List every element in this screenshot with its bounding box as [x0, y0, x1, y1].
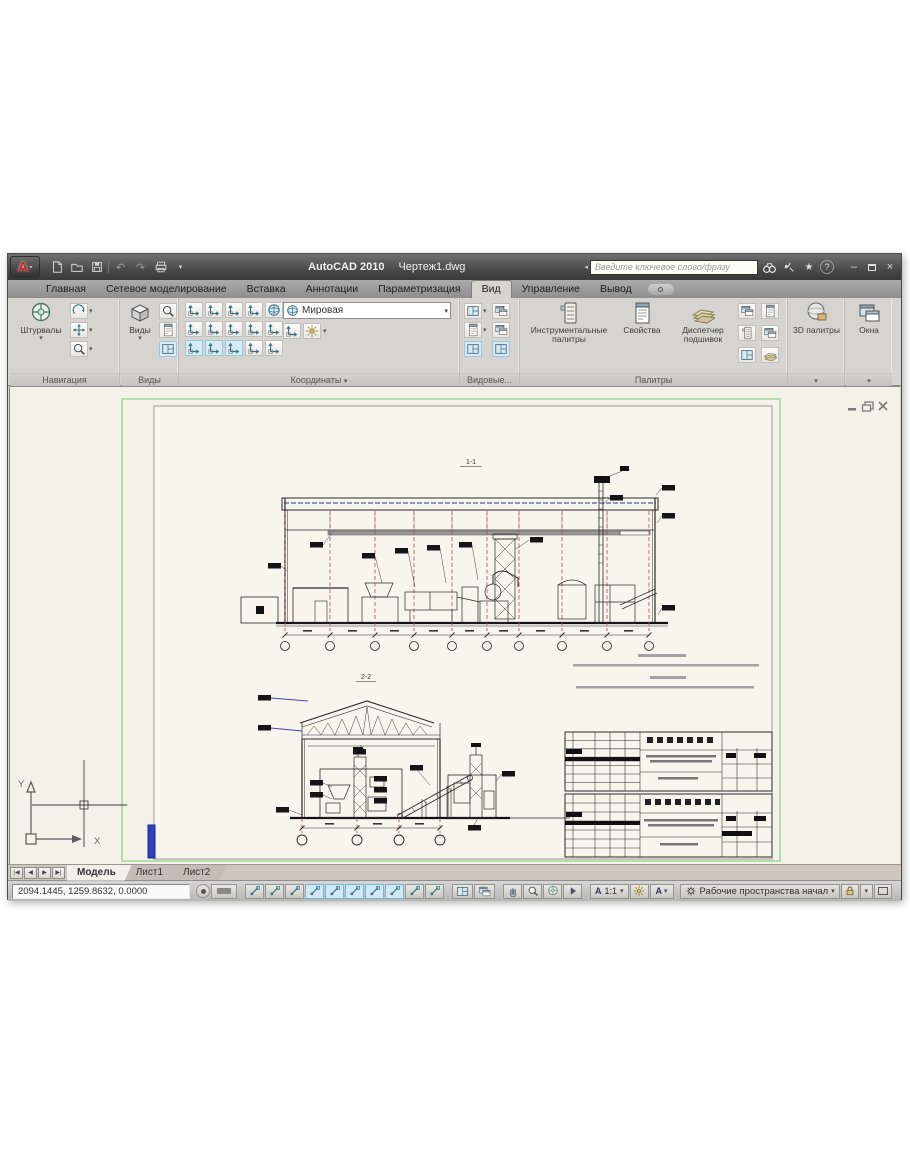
- ucs-tool-button[interactable]: [225, 321, 243, 337]
- minimize-button[interactable]: –: [846, 260, 862, 274]
- ucs-tool-button[interactable]: [185, 340, 203, 356]
- tool-palettes-button[interactable]: Инструментальные палитры: [526, 301, 612, 344]
- pan-icon: [72, 323, 86, 337]
- prev-layout-button[interactable]: ◀: [24, 867, 37, 879]
- sheet-set-icon: [691, 301, 715, 325]
- application-menu-button[interactable]: A▾: [10, 256, 40, 278]
- globe-icon: [286, 304, 299, 317]
- ucs-axes-icon: [267, 322, 281, 336]
- orbit-button[interactable]: [70, 303, 88, 319]
- model-paper-button[interactable]: [211, 884, 237, 899]
- steering-wheel-button[interactable]: [543, 884, 562, 899]
- ribbon-tab-view[interactable]: Вид: [471, 280, 512, 298]
- chevron-down-icon: ▾: [620, 887, 624, 895]
- panel-label-views[interactable]: Виды: [121, 373, 178, 386]
- ucs-tool-button[interactable]: [205, 321, 223, 337]
- magnifier-icon: [72, 342, 86, 356]
- window-title: AutoCAD 2010Чертеж1.dwg: [189, 261, 584, 273]
- annotation-visibility-button[interactable]: [630, 884, 649, 899]
- viewport-icon: [466, 342, 480, 356]
- grid-icon: [740, 348, 754, 362]
- named-viewport-button[interactable]: [464, 322, 482, 338]
- markup-button[interactable]: [761, 303, 779, 319]
- coordinates-readout: 2094.1445, 1259.8632, 0.0000: [12, 884, 190, 899]
- status-bar: 2094.1445, 1259.8632, 0.0000 А: [8, 880, 901, 901]
- redo-button[interactable]: ↷: [132, 259, 149, 275]
- ribbon: Штурвалы ▾ ▾ ▾ ▾ Навигация Виды ▾: [8, 298, 901, 386]
- communication-center-icon[interactable]: [780, 259, 798, 275]
- autocad-window: A▾ ↶ ↷ ▾ AutoCAD 2010Чертеж1.dwg ◂ ★: [7, 253, 902, 900]
- pan-button[interactable]: [503, 884, 522, 899]
- toolbar-lock-button[interactable]: [841, 884, 859, 899]
- restore-icon[interactable]: [863, 402, 874, 411]
- qat-customize-caret[interactable]: ▾: [172, 259, 189, 275]
- section-label: 2-2: [361, 674, 371, 681]
- first-layout-button[interactable]: |◀: [10, 867, 23, 879]
- toggle-ducs[interactable]: [365, 884, 384, 899]
- lights-button[interactable]: [761, 325, 779, 341]
- chevron-down-icon: ▾: [831, 887, 835, 895]
- drawing-canvas[interactable]: 1-1: [9, 386, 900, 864]
- maximize-icon: [868, 264, 876, 271]
- tab-layout2[interactable]: Лист2: [173, 865, 226, 881]
- save-button[interactable]: [88, 259, 105, 275]
- sheet-set-manager-button[interactable]: Диспетчер подшивок: [672, 301, 734, 344]
- ucs-combo-value: Мировая: [302, 305, 441, 316]
- chevron-down-icon: ▾: [89, 326, 93, 334]
- chevron-down-icon: ▾: [89, 307, 93, 315]
- panel-label-windows[interactable]: ▾: [846, 373, 892, 386]
- ucs-axes-icon: [267, 341, 281, 355]
- window-icon: [740, 304, 754, 318]
- ucs-axes-icon: [227, 341, 241, 355]
- steering-wheel-icon: [29, 301, 53, 325]
- ribbon-options-pill[interactable]: [648, 284, 674, 295]
- quickcalc-button[interactable]: [738, 325, 756, 341]
- sheet-icon: [161, 323, 175, 337]
- ucs-tool-button[interactable]: [185, 302, 203, 318]
- chevron-down-icon: ▾: [483, 307, 487, 315]
- steering-wheels-button[interactable]: Штурвалы ▾: [16, 301, 66, 341]
- bucket-icon: [763, 348, 777, 362]
- zoom-extents-button[interactable]: [159, 303, 177, 319]
- join-viewport-button[interactable]: [464, 341, 482, 357]
- ucs-tool-button[interactable]: [205, 340, 223, 356]
- zoom-button[interactable]: [523, 884, 542, 899]
- status-menu-caret[interactable]: ▾: [860, 884, 873, 899]
- chevron-down-icon: ▾: [138, 336, 142, 341]
- workspace-label: Рабочие пространства начал: [700, 886, 829, 897]
- chevron-down-icon: ▾: [323, 327, 327, 335]
- panel-expand-caret: ▾: [867, 378, 871, 385]
- panel-coordinates: Мировая ▾ ▾ Координаты ▾: [179, 298, 460, 386]
- maximize-button[interactable]: [864, 260, 880, 274]
- steering-wheels-label: Штурвалы: [21, 326, 62, 335]
- 3d-palettes-label: 3D палитры: [793, 326, 840, 335]
- annotation-a-icon: А: [656, 886, 663, 896]
- tab-model[interactable]: Модель: [67, 865, 132, 881]
- magnifier-icon: [527, 885, 539, 897]
- 3d-palettes-button[interactable]: 3D палитры: [792, 301, 841, 335]
- ucs-tool-button[interactable]: [225, 302, 243, 318]
- quick-access-toolbar: ↶ ↷ ▾: [48, 259, 189, 275]
- window-icon: [763, 326, 777, 340]
- pan-button[interactable]: [70, 322, 88, 338]
- screenshot-page: A▾ ↶ ↷ ▾ AutoCAD 2010Чертеж1.dwg ◂ ★: [0, 0, 910, 1155]
- viewport-config-button[interactable]: [492, 303, 510, 319]
- fullscreen-icon: [878, 887, 888, 895]
- ucs-axes-icon: [207, 341, 221, 355]
- close-icon[interactable]: [879, 402, 887, 410]
- new-document-button[interactable]: [48, 259, 65, 275]
- document-name: Чертеж1.dwg: [398, 261, 465, 273]
- viewport-clip-button[interactable]: [492, 341, 510, 357]
- magnifier-icon: [161, 304, 175, 318]
- panel-3d-palettes: 3D палитры ▾: [788, 298, 845, 386]
- panel-windows: Окна ▾: [846, 298, 892, 386]
- chevron-down-icon: ▾: [664, 887, 668, 895]
- orbit-icon: [72, 304, 86, 318]
- materials-button[interactable]: [738, 347, 756, 363]
- chevron-down-icon: ▾: [483, 326, 487, 334]
- ribbon-tab-output[interactable]: Вывод: [590, 281, 642, 298]
- panel-expand-caret: ▾: [344, 378, 348, 385]
- annotation-scale-value: 1:1: [605, 886, 618, 896]
- window-icon: [478, 885, 491, 898]
- ucs-tool-button[interactable]: [265, 340, 283, 356]
- clean-screen-button[interactable]: [874, 884, 892, 899]
- properties-button[interactable]: Свойства: [616, 301, 668, 335]
- toggle-ortho[interactable]: [285, 884, 304, 899]
- window-icon: [456, 885, 469, 898]
- ucs-axes-icon: [247, 303, 261, 317]
- ucs-axes-icon: [187, 341, 201, 355]
- sun-icon: [633, 885, 645, 897]
- autocad-logo-icon: A: [18, 260, 29, 275]
- tool-palette-icon: [557, 301, 581, 325]
- help-icon[interactable]: ?: [820, 260, 834, 274]
- panel-views: Виды ▾ Виды: [121, 298, 179, 386]
- viewport-icon: [494, 342, 508, 356]
- search-icon[interactable]: [760, 259, 778, 275]
- chevron-down-icon: ▾: [89, 345, 93, 353]
- window-icon: [494, 304, 508, 318]
- ucs-tool-button[interactable]: [265, 321, 283, 337]
- layout-tab-bar: |◀ ◀ ▶ ▶| Модель Лист1 Лист2: [8, 864, 901, 880]
- ucs-world-icon: [267, 303, 281, 317]
- toggle-otrack[interactable]: [345, 884, 364, 899]
- panel-label-3d-palettes[interactable]: ▾: [788, 373, 844, 386]
- toggle-osnap[interactable]: [325, 884, 344, 899]
- sphere-icon: [805, 301, 829, 325]
- workspace-switcher[interactable]: Рабочие пространства начал ▾: [680, 884, 840, 899]
- windows-icon: [857, 301, 881, 325]
- ucs-axes-icon: [285, 324, 299, 338]
- sun-star-icon: [305, 324, 319, 338]
- ucs-axes-icon: [187, 303, 201, 317]
- zoom-button[interactable]: [70, 341, 88, 357]
- next-layout-button[interactable]: ▶: [38, 867, 51, 879]
- ucs-axes-icon: [227, 303, 241, 317]
- tab-layout1[interactable]: Лист1: [126, 865, 179, 881]
- ucs-tool-button[interactable]: [185, 321, 203, 337]
- named-views-button[interactable]: [159, 322, 177, 338]
- undo-button[interactable]: ↶: [112, 259, 129, 275]
- chevron-down-icon: ▾: [39, 336, 43, 341]
- open-button[interactable]: [68, 259, 85, 275]
- ribbon-tab-parametric[interactable]: Параметризация: [368, 281, 471, 298]
- sheet-icon: [763, 304, 777, 318]
- properties-icon: [630, 301, 654, 325]
- properties-label: Свойства: [623, 326, 660, 335]
- favorites-star-icon[interactable]: ★: [800, 259, 818, 275]
- ribbon-options-icon: [658, 287, 663, 292]
- viewport-icon: [161, 342, 175, 356]
- ucs-axes-icon: [207, 322, 221, 336]
- infocenter: ◂ ★ ?: [584, 259, 834, 275]
- panel-label-palettes[interactable]: Палитры: [520, 373, 787, 386]
- windows-label: Окна: [859, 326, 879, 335]
- ribbon-tab-row: Главная Сетевое моделирование Вставка Ан…: [8, 280, 901, 298]
- ucs-x-label: X: [94, 836, 101, 847]
- viewport-icon: [466, 304, 480, 318]
- crosshair-cursor: [32, 760, 127, 847]
- annotation-scale-button[interactable]: А 1:1 ▾: [590, 884, 629, 899]
- designcenter-button[interactable]: [738, 303, 756, 319]
- minimize-icon[interactable]: [848, 408, 856, 411]
- ribbon-tab-manage[interactable]: Управление: [512, 281, 590, 298]
- ucs-icon: Y X: [18, 779, 101, 847]
- views-button[interactable]: Виды ▾: [123, 301, 157, 341]
- gear-icon: [685, 885, 697, 897]
- ribbon-tab-mesh-modeling[interactable]: Сетевое моделирование: [96, 281, 237, 298]
- play-icon: [567, 885, 579, 897]
- drawing-window-controls[interactable]: [848, 402, 887, 411]
- lock-icon: [844, 885, 856, 897]
- chevron-down-icon: ▾: [444, 307, 448, 315]
- plot-button[interactable]: [152, 259, 169, 275]
- panel-label-viewports[interactable]: Видовые...: [460, 373, 519, 386]
- toggle-snap[interactable]: [245, 884, 264, 899]
- ucs-icon-grid: [185, 302, 284, 358]
- panel-label-coordinates[interactable]: Координаты ▾: [179, 373, 459, 386]
- search-input[interactable]: [590, 260, 758, 275]
- chevron-down-icon: ▾: [29, 264, 32, 271]
- sheet-set-label: Диспетчер подшивок: [672, 326, 734, 344]
- panel-palettes: Инструментальные палитры Свойства Диспет…: [520, 298, 788, 386]
- chevron-down-icon: ▾: [864, 887, 868, 895]
- palette-icon: [740, 326, 754, 340]
- ucs-axes-icon: [227, 322, 241, 336]
- ucs-named-button[interactable]: [283, 323, 301, 339]
- panel-navigate: Штурвалы ▾ ▾ ▾ ▾ Навигация: [10, 298, 120, 386]
- ucs-axes-icon: [207, 303, 221, 317]
- dot-icon: [201, 889, 206, 894]
- hand-icon: [507, 885, 519, 897]
- new-viewport-button[interactable]: [464, 303, 482, 319]
- toggle-qp[interactable]: [425, 884, 444, 899]
- window-icon: [494, 323, 508, 337]
- ucs-axes-icon: [247, 322, 261, 336]
- toggle-dyn[interactable]: [385, 884, 404, 899]
- selection-marker: [148, 825, 155, 858]
- ucs-tool-button[interactable]: [245, 321, 263, 337]
- quick-view-layouts-button[interactable]: [474, 884, 495, 899]
- ucs-combo[interactable]: Мировая ▾: [283, 302, 451, 319]
- views-label: Виды: [129, 326, 151, 335]
- ribbon-tab-home[interactable]: Главная: [36, 281, 96, 298]
- toolbar-divider: [108, 261, 109, 273]
- app-title: AutoCAD 2010: [308, 261, 384, 273]
- annotation-a-icon: А: [595, 886, 602, 896]
- wheel-icon: [547, 885, 559, 897]
- toggle-polar[interactable]: [305, 884, 324, 899]
- ribbon-tab-annotate[interactable]: Аннотации: [296, 281, 369, 298]
- ucs-y-label: Y: [18, 779, 25, 790]
- viewport-preview-button[interactable]: [159, 341, 177, 357]
- panel-label-navigate[interactable]: Навигация: [10, 373, 119, 386]
- close-button[interactable]: ×: [882, 260, 898, 274]
- autoscale-button[interactable]: А▾: [650, 884, 674, 899]
- window-controls: – ×: [846, 260, 898, 274]
- ucs-axes-icon: [187, 322, 201, 336]
- toggle-grid[interactable]: [265, 884, 284, 899]
- sheet-icon: [466, 323, 480, 337]
- infocenter-collapse-caret[interactable]: ◂: [584, 263, 588, 271]
- tool-palettes-label: Инструментальные палитры: [526, 326, 612, 344]
- model-space-button[interactable]: [452, 884, 473, 899]
- section-label: 1-1: [466, 459, 476, 466]
- ucs-axes-icon: [247, 341, 261, 355]
- showmotion-button[interactable]: [563, 884, 582, 899]
- cube-icon: [128, 301, 152, 325]
- ucs-origin-button[interactable]: [303, 323, 321, 339]
- model-space[interactable]: 1-1: [10, 387, 901, 865]
- windows-button[interactable]: Окна: [848, 301, 890, 335]
- viewport-restore-button[interactable]: [492, 322, 510, 338]
- ucs-tool-button[interactable]: [225, 340, 243, 356]
- paper-icon: [217, 888, 231, 894]
- clean-screen-round-button[interactable]: [196, 884, 210, 898]
- visual-styles-button[interactable]: [761, 347, 779, 363]
- title-bar: A▾ ↶ ↷ ▾ AutoCAD 2010Чертеж1.dwg ◂ ★: [8, 254, 901, 280]
- ribbon-tab-insert[interactable]: Вставка: [237, 281, 296, 298]
- panel-expand-caret: ▾: [814, 378, 818, 385]
- toggle-lwt[interactable]: [405, 884, 424, 899]
- ucs-tool-button[interactable]: [245, 302, 263, 318]
- ucs-tool-button[interactable]: [265, 302, 283, 318]
- last-layout-button[interactable]: ▶|: [52, 867, 65, 879]
- ucs-tool-button[interactable]: [245, 340, 263, 356]
- ucs-tool-button[interactable]: [205, 302, 223, 318]
- panel-viewports: ▾ ▾ Видовые...: [460, 298, 520, 386]
